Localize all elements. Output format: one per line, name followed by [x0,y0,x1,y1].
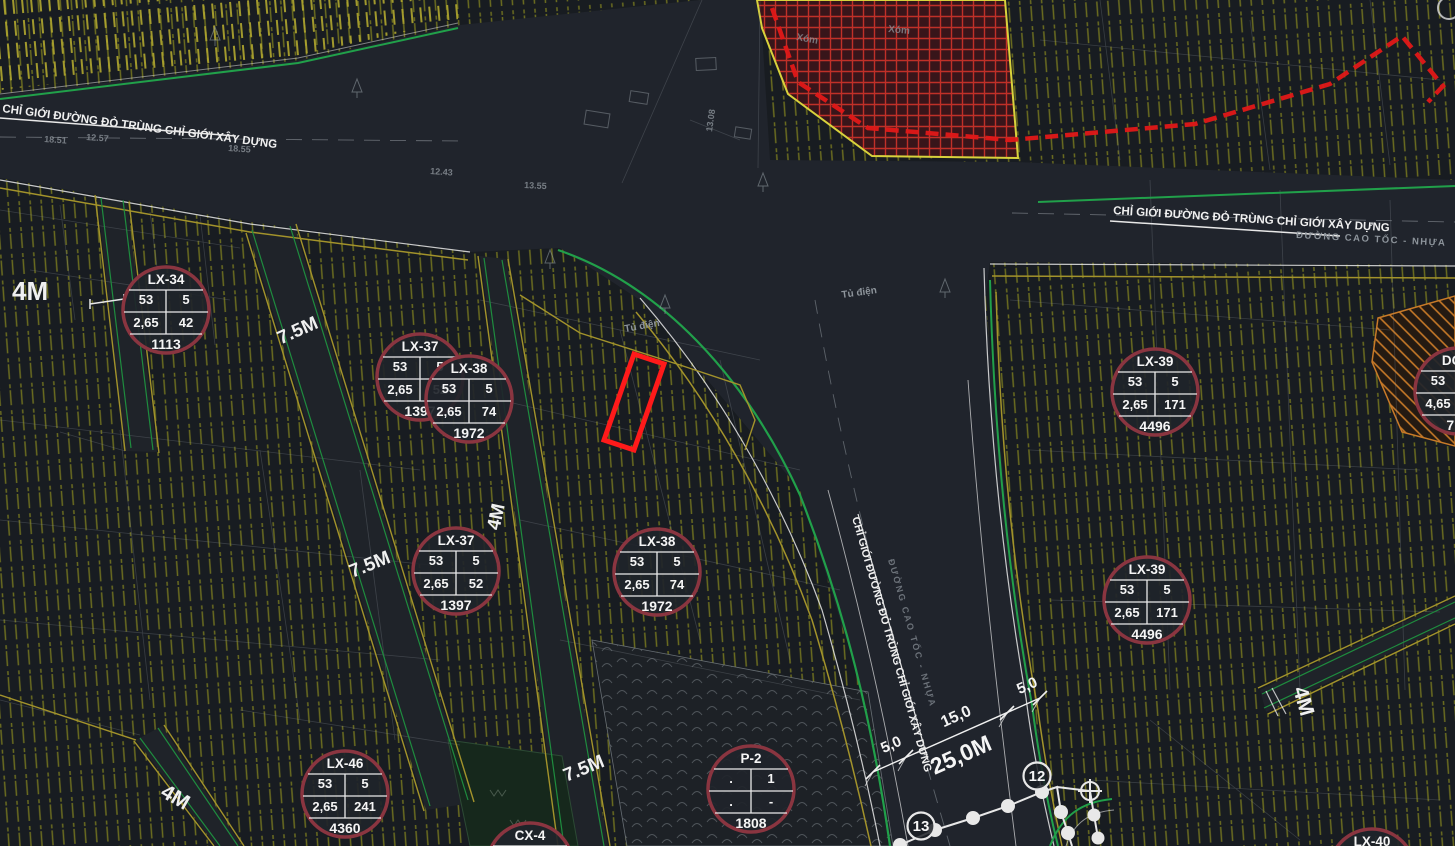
vertex-12-number: 12 [1029,768,1046,785]
parcel-name: LX-39 [1129,562,1166,577]
parcel-value: 2,65 [624,577,649,592]
parcel-value: 5 [472,553,479,568]
parcel-value: 5 [361,776,368,791]
parcel-value: 5 [673,554,680,569]
parcel-value: 2,65 [436,404,461,419]
parcel-circle: LX-34 53 5 2,65 42 1113 [123,267,209,353]
parcel-value: 4,65 [1425,396,1450,411]
parcel-area: 4496 [1139,418,1170,434]
parcel-area: 4360 [329,820,360,836]
parcel-value: 53 [139,292,153,307]
parcel-area: 4496 [1131,626,1162,642]
parcel-value: 53 [318,776,332,791]
parcel-area: 1972 [641,598,672,614]
hamlet-label: Xóm [888,24,911,37]
parcel-value: 53 [442,381,456,396]
parcel-name: LX-40 [1354,834,1391,846]
cad-map-canvas: CHỈ GIỚI ĐƯỜNG ĐỎ TRÙNG CHỈ GIỚI XÂY DỰN… [0,0,1455,846]
parcel-circle: LX-39 53 5 2,65 171 4496 [1112,349,1198,435]
parcel-value: 53 [1128,374,1142,389]
parcel-name: LX-38 [451,361,488,376]
parcel-circle: LX-39 53 5 2,65 171 4496 [1104,557,1190,643]
survey-num: 18.55 [228,143,251,155]
parcel-value: 2,65 [387,382,412,397]
parcel-value: 42 [179,315,193,330]
survey-num: 13.55 [524,180,547,191]
vertex-13[interactable]: 13 [908,813,935,840]
parcel-value: . [729,771,733,786]
parcel-circle: LX-38 53 5 2,65 74 1972 [426,356,512,442]
parcel-circle: LX-38 53 5 2,65 74 1972 [614,529,700,615]
parcel-value: 171 [1156,605,1178,620]
parcel-value: 52 [469,576,483,591]
survey-num: 12.57 [86,132,109,144]
survey-num: 18.51 [44,134,67,146]
parcel-value: 2,65 [1122,397,1147,412]
parcel-name: P-2 [740,751,761,766]
parcel-value: 5 [1163,582,1170,597]
parcel-name: LX-46 [327,756,364,771]
parcel-label-lx39-a[interactable]: LX-39 53 5 2,65 171 4496 [1112,349,1198,435]
dim-4m-topleft: 4M [12,276,48,306]
parcel-name: CX-4 [515,828,546,843]
parcel-label-lx46[interactable]: LX-46 53 5 2,65 241 4360 [302,751,388,837]
parcel-circle: LX-37 53 5 2,65 52 1397 [413,528,499,614]
parcel-circle: LX-46 53 5 2,65 241 4360 [302,751,388,837]
parcel-value: . [729,794,733,809]
parcel-label-p2[interactable]: P-2 . 1 . - 1808 [708,746,794,832]
parcel-label-lx37-b[interactable]: LX-37 53 5 2,65 52 1397 [413,528,499,614]
parcel-label-lx34[interactable]: LX-34 53 5 2,65 42 1113 [123,267,209,353]
parcel-value: 74 [482,404,497,419]
parcel-area: 1808 [735,815,766,831]
parcel-circle: P-2 . 1 . - 1808 [708,746,794,832]
parcel-value: 2,65 [423,576,448,591]
parcel-area: 1113 [151,336,181,352]
parcel-value: 5 [485,381,492,396]
parcel-label-lx38-a[interactable]: LX-38 53 5 2,65 74 1972 [426,356,512,442]
parcel-value: 2,65 [1114,605,1139,620]
parcel-name: LX-37 [402,339,439,354]
parcel-name: DG-6 [1442,353,1455,368]
vertex-12[interactable]: 12 [1024,763,1051,790]
survey-num: 12.43 [430,166,453,178]
parcel-value: 2,65 [133,315,158,330]
parcel-value: - [769,794,773,809]
parcel-value: 53 [429,553,443,568]
parcel-name: LX-39 [1137,354,1174,369]
parcel-value: 5 [182,292,189,307]
parcel-name: LX-38 [639,534,676,549]
parcel-value: 53 [630,554,644,569]
vertex-13-number: 13 [913,818,930,835]
parcel-name: LX-34 [148,272,185,287]
parcel-area: 1397 [440,597,471,613]
parcel-value: 5 [1171,374,1178,389]
parcel-value: 171 [1164,397,1186,412]
parcel-name: LX-37 [438,533,475,548]
parcel-value: 53 [1120,582,1134,597]
parcel-value: 53 [1431,373,1445,388]
parcel-area: 1972 [453,425,484,441]
parcel-value: 2,65 [312,799,337,814]
parcel-label-lx38-b[interactable]: LX-38 53 5 2,65 74 1972 [614,529,700,615]
parcel-value: 53 [393,359,407,374]
parcel-value: 241 [354,799,376,814]
parcel-label-lx39-b[interactable]: LX-39 53 5 2,65 171 4496 [1104,557,1190,643]
parcel-value: 1 [767,771,774,786]
parcel-value: 74 [670,577,685,592]
parcel-area: 712 [1446,417,1455,433]
